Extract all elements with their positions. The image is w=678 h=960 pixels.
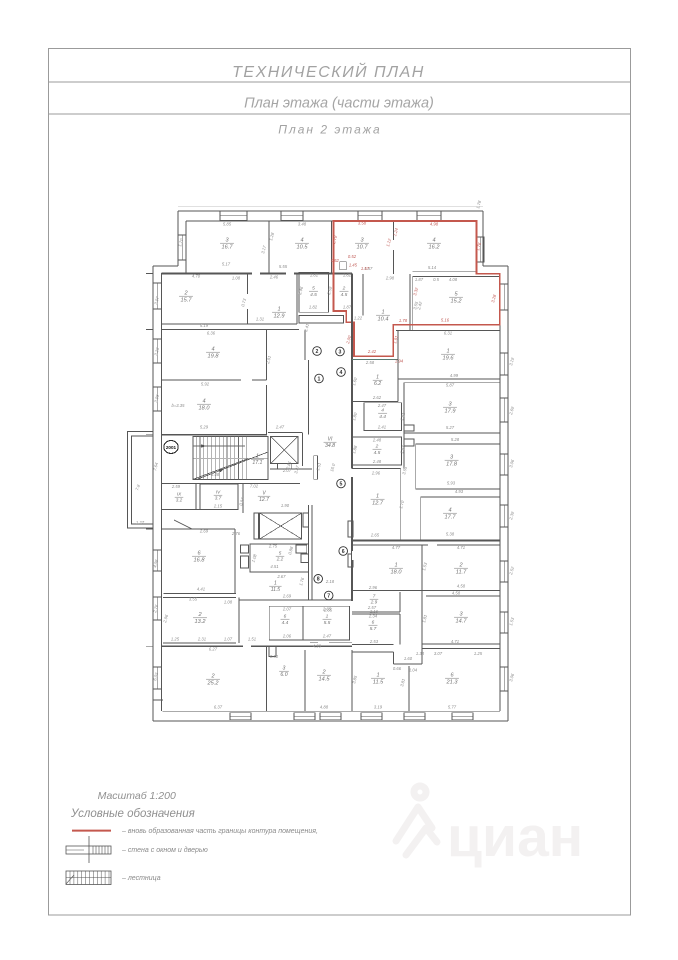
svg-text:13.2: 13.2 <box>195 619 207 625</box>
svg-text:ТЕХНИЧЕСКИЙ ПЛАН: ТЕХНИЧЕСКИЙ ПЛАН <box>232 62 425 81</box>
svg-text:4.51: 4.51 <box>270 564 278 569</box>
svg-text:5.28: 5.28 <box>451 437 460 442</box>
svg-text:17.1: 17.1 <box>252 460 262 466</box>
svg-text:34.8: 34.8 <box>325 443 335 449</box>
svg-text:2.75: 2.75 <box>268 544 278 549</box>
svg-text:17.9: 17.9 <box>445 409 456 415</box>
svg-text:17.8: 17.8 <box>446 462 458 468</box>
svg-text:2.96: 2.96 <box>368 585 378 590</box>
svg-text:7: 7 <box>373 594 376 599</box>
svg-text:3.19: 3.19 <box>374 705 383 710</box>
svg-text:11.7: 11.7 <box>456 570 467 576</box>
svg-text:4.99: 4.99 <box>313 644 322 649</box>
svg-text:1.07: 1.07 <box>224 637 233 642</box>
svg-text:14.5: 14.5 <box>319 677 331 683</box>
svg-text:1: 1 <box>318 376 321 382</box>
svg-text:0.52: 0.52 <box>331 258 340 263</box>
svg-text:6.37: 6.37 <box>214 705 223 710</box>
svg-text:3.2: 3.2 <box>176 498 183 503</box>
svg-text:0.52: 0.52 <box>348 254 357 259</box>
svg-text:2.62: 2.62 <box>372 395 382 400</box>
svg-text:План 2 этажа: План 2 этажа <box>278 123 381 137</box>
svg-text:0.66: 0.66 <box>393 666 402 671</box>
svg-text:План этажа (части этажа): План этажа (части этажа) <box>244 96 434 112</box>
svg-text:5.27: 5.27 <box>446 425 455 430</box>
svg-text:4: 4 <box>381 408 384 414</box>
svg-text:6: 6 <box>284 614 287 620</box>
svg-text:4.08: 4.08 <box>449 277 458 282</box>
svg-text:Условные обозначения: Условные обозначения <box>70 808 195 820</box>
svg-text:4: 4 <box>340 370 343 376</box>
svg-text:2.47: 2.47 <box>275 425 285 430</box>
svg-text:4.58: 4.58 <box>457 584 466 589</box>
svg-text:2.57: 2.57 <box>367 605 377 610</box>
svg-text:6.36: 6.36 <box>207 331 216 336</box>
svg-text:1.25: 1.25 <box>474 651 483 656</box>
svg-text:10.5: 10.5 <box>297 245 309 251</box>
svg-text:4: 4 <box>448 508 451 514</box>
svg-text:5.14: 5.14 <box>428 265 437 270</box>
svg-text:1.27: 1.27 <box>136 520 145 525</box>
svg-text:2.67: 2.67 <box>276 574 286 579</box>
svg-text:1.94: 1.94 <box>395 359 404 364</box>
svg-text:5.92: 5.92 <box>201 382 210 387</box>
svg-text:18.0: 18.0 <box>391 570 403 576</box>
svg-text:1.82: 1.82 <box>309 305 318 310</box>
svg-text:5.29: 5.29 <box>200 425 209 430</box>
svg-text:– вновь образованная часть гра: – вновь образованная часть границы конту… <box>121 827 318 835</box>
svg-text:11.5: 11.5 <box>271 587 281 593</box>
svg-text:10.4: 10.4 <box>378 317 389 323</box>
svg-text:3: 3 <box>339 349 342 355</box>
svg-text:Масштаб 1:200: Масштаб 1:200 <box>98 790 176 802</box>
svg-text:17.7: 17.7 <box>445 515 457 521</box>
svg-text:8: 8 <box>317 577 320 583</box>
svg-text:5.7: 5.7 <box>370 626 377 632</box>
svg-text:18.0: 18.0 <box>199 406 211 412</box>
svg-text:3.55: 3.55 <box>189 597 198 602</box>
svg-text:4: 4 <box>432 238 435 244</box>
svg-text:5.93: 5.93 <box>447 481 456 486</box>
svg-text:11.5: 11.5 <box>373 680 384 686</box>
svg-text:2.48: 2.48 <box>372 459 382 464</box>
svg-text:1: 1 <box>376 494 379 500</box>
svg-text:2.47: 2.47 <box>322 633 332 638</box>
svg-text:1: 1 <box>376 673 379 679</box>
svg-text:21.3: 21.3 <box>446 680 459 686</box>
svg-text:5: 5 <box>279 551 282 556</box>
svg-text:1: 1 <box>277 307 280 313</box>
svg-text:4.4: 4.4 <box>282 620 289 626</box>
svg-text:2.31: 2.31 <box>197 637 206 642</box>
svg-text:2.96: 2.96 <box>371 471 381 476</box>
svg-text:2.41: 2.41 <box>377 425 386 430</box>
svg-text:1.87: 1.87 <box>343 305 352 310</box>
svg-text:3.07: 3.07 <box>434 651 443 656</box>
svg-text:5.16: 5.16 <box>441 318 450 323</box>
svg-text:7.02: 7.02 <box>250 484 259 489</box>
svg-text:4.70: 4.70 <box>192 274 201 279</box>
svg-text:1.38: 1.38 <box>416 651 425 656</box>
svg-text:1.45: 1.45 <box>349 262 358 267</box>
svg-text:2.59: 2.59 <box>171 484 181 489</box>
svg-text:2.65: 2.65 <box>322 607 332 612</box>
svg-text:4.71: 4.71 <box>457 545 465 550</box>
svg-text:16.7: 16.7 <box>222 245 234 251</box>
svg-text:1.51: 1.51 <box>248 637 256 642</box>
svg-text:1.87: 1.87 <box>415 277 424 282</box>
svg-text:2.48: 2.48 <box>372 438 382 443</box>
svg-text:1.04: 1.04 <box>409 668 418 673</box>
svg-text:12.7: 12.7 <box>372 501 384 507</box>
svg-text:4: 4 <box>202 399 205 405</box>
svg-text:2.69: 2.69 <box>282 594 292 599</box>
svg-text:5.19: 5.19 <box>200 323 209 328</box>
svg-text:5.85: 5.85 <box>223 222 232 227</box>
svg-text:1: 1 <box>274 581 277 587</box>
svg-text:1: 1 <box>394 563 397 569</box>
svg-text:2.15: 2.15 <box>213 504 223 509</box>
svg-text:1.08: 1.08 <box>232 275 241 280</box>
svg-text:6.48: 6.48 <box>211 472 220 477</box>
svg-text:4.58: 4.58 <box>452 591 461 596</box>
svg-text:2.18: 2.18 <box>325 579 335 584</box>
svg-text:16.8: 16.8 <box>194 558 206 564</box>
svg-text:3: 3 <box>283 666 286 672</box>
svg-text:2.76: 2.76 <box>231 531 241 536</box>
svg-text:2: 2 <box>342 286 346 292</box>
svg-text:2001: 2001 <box>166 445 177 450</box>
svg-text:5.87: 5.87 <box>446 382 455 387</box>
svg-text:3.58: 3.58 <box>358 221 367 226</box>
svg-text:1.82: 1.82 <box>343 273 352 278</box>
svg-text:14.7: 14.7 <box>456 619 468 625</box>
svg-text:4.5: 4.5 <box>374 450 381 456</box>
svg-text:4.93: 4.93 <box>455 489 464 494</box>
svg-text:1: 1 <box>376 375 379 381</box>
svg-text:1.22: 1.22 <box>354 316 363 321</box>
svg-text:1.90: 1.90 <box>281 503 290 508</box>
svg-text:10.7: 10.7 <box>357 245 369 251</box>
svg-text:6: 6 <box>372 620 375 626</box>
svg-text:5: 5 <box>340 481 343 487</box>
svg-text:4.4: 4.4 <box>379 414 386 420</box>
svg-text:1: 1 <box>381 310 384 316</box>
svg-text:6.2: 6.2 <box>374 381 381 387</box>
svg-text:2.65: 2.65 <box>370 533 380 538</box>
svg-text:19.8: 19.8 <box>208 354 220 360</box>
svg-text:2.07: 2.07 <box>282 607 292 612</box>
svg-text:4.5: 4.5 <box>310 292 317 298</box>
svg-text:4: 4 <box>300 238 303 244</box>
svg-text:3.7: 3.7 <box>215 496 222 501</box>
svg-text:– стена с окном и дверью: – стена с окном и дверью <box>121 846 209 854</box>
svg-text:4.88: 4.88 <box>320 705 329 710</box>
svg-text:5.55: 5.55 <box>279 264 288 269</box>
svg-text:12.7: 12.7 <box>259 497 269 503</box>
svg-text:15.7: 15.7 <box>181 298 193 304</box>
svg-text:4.99: 4.99 <box>450 373 459 378</box>
svg-text:1.60: 1.60 <box>404 656 413 661</box>
svg-text:1.78: 1.78 <box>399 318 408 323</box>
svg-text:5.38: 5.38 <box>446 532 455 537</box>
svg-text:2: 2 <box>375 444 379 450</box>
svg-text:1.08: 1.08 <box>224 600 233 605</box>
svg-text:1.25: 1.25 <box>171 637 180 642</box>
svg-text:1: 1 <box>326 614 329 620</box>
svg-text:2.34: 2.34 <box>368 614 378 619</box>
svg-text:2.53: 2.53 <box>369 639 379 644</box>
svg-text:VI: VI <box>328 437 333 443</box>
svg-text:1: 1 <box>446 349 449 355</box>
svg-text:6: 6 <box>342 549 345 555</box>
svg-text:5.17: 5.17 <box>222 262 231 267</box>
svg-text:16.2: 16.2 <box>429 245 441 251</box>
svg-text:6.27: 6.27 <box>209 647 218 652</box>
svg-text:2.69: 2.69 <box>199 529 209 534</box>
svg-text:1.81: 1.81 <box>310 273 318 278</box>
svg-text:циан: циан <box>447 805 583 869</box>
svg-text:5: 5 <box>312 286 315 292</box>
svg-text:2.47: 2.47 <box>377 403 387 408</box>
svg-text:6.31: 6.31 <box>444 331 452 336</box>
svg-text:5.5: 5.5 <box>324 620 331 626</box>
svg-text:4.41: 4.41 <box>197 587 205 592</box>
svg-text:7: 7 <box>327 593 330 599</box>
svg-text:2.9: 2.9 <box>370 600 378 605</box>
svg-text:2.98: 2.98 <box>385 276 395 281</box>
svg-text:5.77: 5.77 <box>448 705 457 710</box>
svg-text:b=3.35: b=3.35 <box>172 403 186 408</box>
svg-text:25.2: 25.2 <box>207 681 220 687</box>
svg-text:4.77: 4.77 <box>392 545 401 550</box>
svg-text:1.31: 1.31 <box>256 317 264 322</box>
svg-text:1: 1 <box>256 454 259 460</box>
svg-text:0.50: 0.50 <box>270 654 279 659</box>
svg-text:2: 2 <box>316 349 319 355</box>
svg-text:19.6: 19.6 <box>443 356 455 362</box>
svg-text:3.48: 3.48 <box>298 222 307 227</box>
svg-text:4.71: 4.71 <box>451 639 459 644</box>
svg-text:2.58: 2.58 <box>365 360 375 365</box>
svg-text:6.0: 6.0 <box>280 672 287 678</box>
svg-text:2.2: 2.2 <box>276 557 284 562</box>
svg-text:0.5: 0.5 <box>433 277 439 282</box>
svg-text:15.2: 15.2 <box>451 299 463 305</box>
svg-text:– лестница: – лестница <box>121 875 161 882</box>
svg-text:4.5: 4.5 <box>341 292 348 298</box>
svg-text:12.9: 12.9 <box>274 314 285 320</box>
svg-text:1.57: 1.57 <box>361 266 370 271</box>
svg-text:2.42: 2.42 <box>367 349 377 354</box>
svg-text:2.06: 2.06 <box>282 633 292 638</box>
svg-text:2.46: 2.46 <box>269 275 279 280</box>
svg-text:4.98: 4.98 <box>430 222 439 227</box>
svg-text:4: 4 <box>211 347 214 353</box>
